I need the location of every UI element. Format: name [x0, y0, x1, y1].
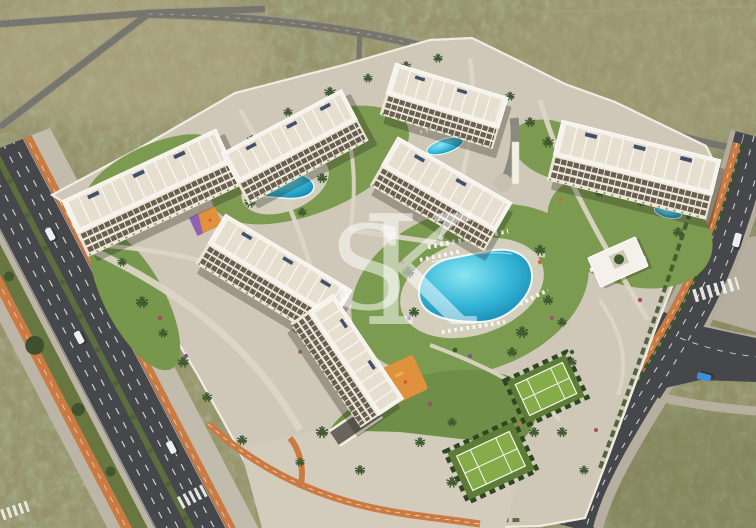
- aerial-render-page: S K: [0, 0, 756, 528]
- drop-off: [494, 174, 512, 192]
- aerial-render: S K: [0, 0, 756, 528]
- landmark-tower: [512, 142, 519, 184]
- watermark-letter-k: K: [361, 183, 477, 360]
- watermark-monogram: S K: [329, 183, 477, 360]
